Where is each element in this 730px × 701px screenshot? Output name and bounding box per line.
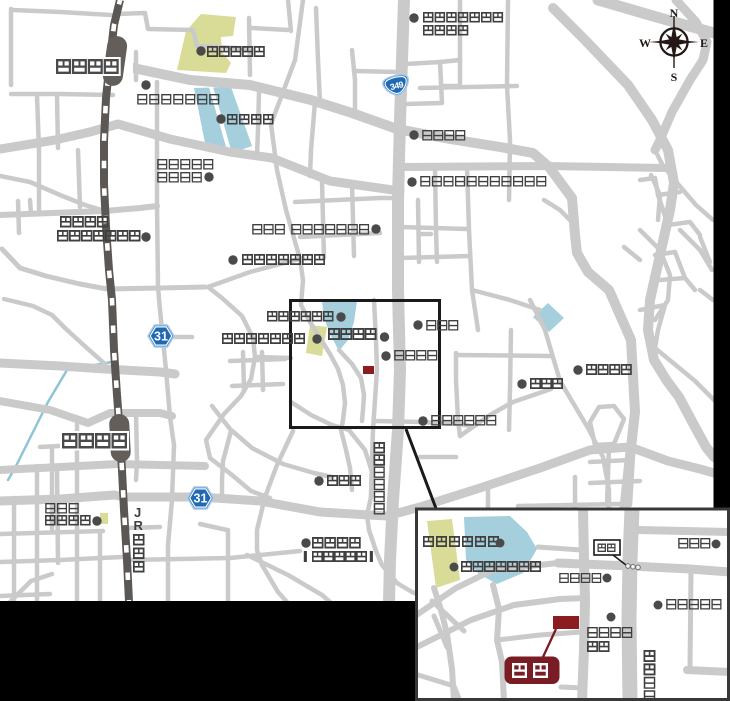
svg-text:31: 31 bbox=[194, 492, 208, 506]
svg-text:S: S bbox=[671, 70, 678, 84]
svg-text:31: 31 bbox=[154, 330, 168, 344]
svg-text:E: E bbox=[700, 36, 708, 50]
svg-text:N: N bbox=[670, 6, 679, 20]
svg-text:W: W bbox=[639, 36, 651, 50]
svg-text:R: R bbox=[134, 518, 144, 533]
